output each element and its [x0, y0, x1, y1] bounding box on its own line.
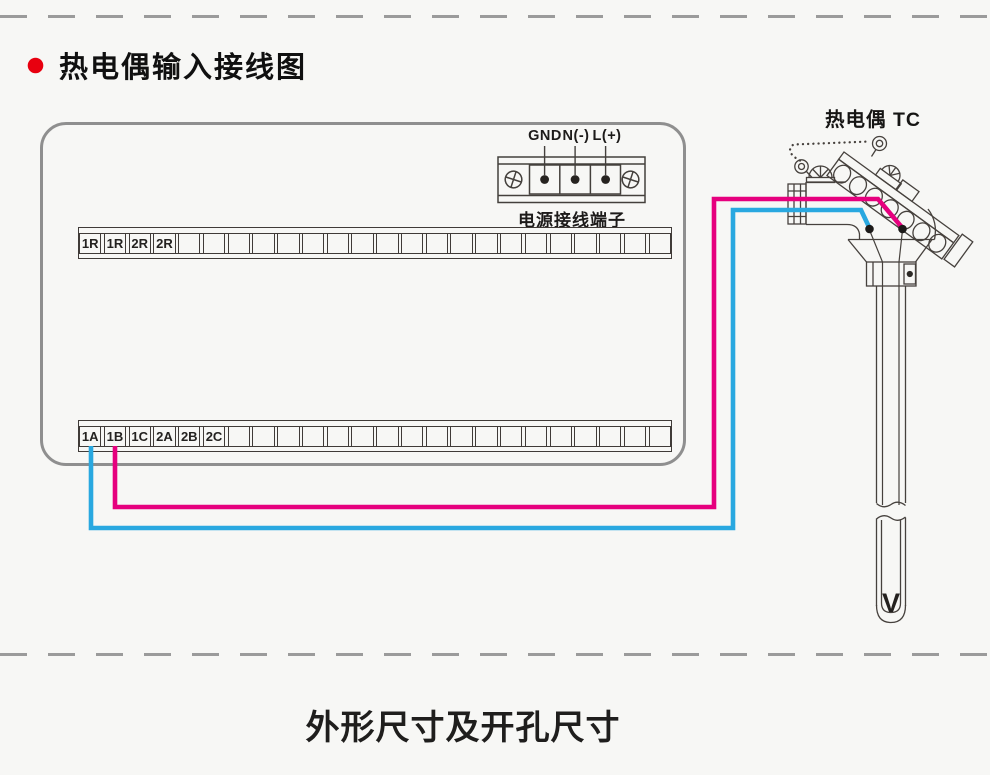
terminal-cell [351, 234, 373, 253]
terminal-cell [203, 234, 225, 253]
input-strip-cells: 1A1B1C2A2B2C [79, 427, 671, 446]
terminal-cell [550, 234, 572, 253]
terminal-cell [649, 234, 671, 253]
terminal-cell [574, 427, 596, 446]
element-wire [899, 230, 903, 505]
page: { "title": { "bullet_color": "#e8000f", … [0, 0, 990, 775]
tc-screw-cap [827, 137, 982, 268]
terminal-cell: 1C [129, 427, 151, 446]
terminal-cell [624, 234, 646, 253]
eye-screw-icon [795, 160, 812, 178]
bullet-dot [28, 57, 44, 73]
chain-dotted-line [790, 142, 869, 161]
controller-outline-box [40, 122, 686, 466]
tc-terminal-dot [865, 225, 874, 234]
terminal-cell [500, 234, 522, 253]
input-terminal-strip: 1A1B1C2A2B2C [78, 420, 672, 452]
terminal-cell [475, 427, 497, 446]
terminal-cell: 2B [178, 427, 200, 446]
terminal-cell: 2A [153, 427, 175, 446]
power-terminal-label-n: N(-) [563, 128, 590, 144]
terminal-cell [252, 427, 274, 446]
terminal-cell [550, 427, 572, 446]
terminal-cell [649, 427, 671, 446]
red-bullet-icon [27, 57, 44, 74]
relay-terminal-strip: 1R1R2R2R [78, 227, 672, 259]
terminal-cell [475, 234, 497, 253]
strip-bottom-rail [79, 446, 671, 449]
strip-bottom-rail [79, 253, 671, 256]
terminal-cell [178, 234, 200, 253]
section-title: 热电偶输入接线图 [59, 44, 307, 86]
power-terminal-label-l: L(+) [593, 128, 622, 144]
wing-nut-icon [876, 160, 908, 190]
junction-mark: V [882, 588, 900, 618]
terminal-cell [401, 234, 423, 253]
terminal-cell [302, 234, 324, 253]
bottom-dashed-divider [0, 653, 990, 656]
terminal-cell [302, 427, 324, 446]
cap-end-piece [944, 234, 973, 267]
tc-probe-tube [877, 286, 906, 623]
thermocouple-drawing: V [788, 137, 982, 623]
terminal-cell [599, 427, 621, 446]
terminal-cell [351, 427, 373, 446]
collar-screw [904, 264, 916, 284]
terminal-cell: 2R [153, 234, 175, 253]
terminal-cell [376, 427, 398, 446]
terminal-cell [401, 427, 423, 446]
terminal-cell [228, 234, 250, 253]
wing-nut-icon [807, 166, 835, 183]
terminal-cell [525, 234, 547, 253]
terminal-cell [327, 427, 349, 446]
terminal-cell: 1R [104, 234, 126, 253]
eye-screw-icon [872, 137, 887, 157]
terminal-cell [426, 234, 448, 253]
terminal-cell [450, 427, 472, 446]
relay-strip-cells: 1R1R2R2R [79, 234, 671, 253]
tc-head-body [806, 182, 935, 240]
terminal-cell [228, 427, 250, 446]
terminal-cell [277, 427, 299, 446]
terminal-cell: 1R [79, 234, 101, 253]
tc-neck [848, 240, 932, 287]
terminal-cell [327, 234, 349, 253]
top-dashed-divider [0, 15, 990, 18]
terminal-cell [426, 427, 448, 446]
terminal-cell [376, 234, 398, 253]
tc-terminal-dot [898, 225, 907, 234]
terminal-cell: 2R [129, 234, 151, 253]
cap-tab [896, 180, 919, 201]
terminal-cell [277, 234, 299, 253]
element-wire [870, 230, 883, 505]
terminal-cell [525, 427, 547, 446]
terminal-cell [574, 234, 596, 253]
footer-caption: 外形尺寸及开孔尺寸 [306, 700, 621, 749]
terminal-cell [624, 427, 646, 446]
terminal-cell: 2C [203, 427, 225, 446]
power-terminal-label-gnd: GND [528, 128, 562, 144]
thermocouple-label: 热电偶 TC [825, 103, 921, 132]
terminal-cell [252, 234, 274, 253]
terminal-cell [599, 234, 621, 253]
tc-hex-nut [788, 184, 806, 224]
section-title-row: 热电偶输入接线图 [27, 44, 307, 86]
terminal-cell [500, 427, 522, 446]
terminal-cell [450, 234, 472, 253]
terminal-cell: 1A [79, 427, 101, 446]
terminal-cell: 1B [104, 427, 126, 446]
